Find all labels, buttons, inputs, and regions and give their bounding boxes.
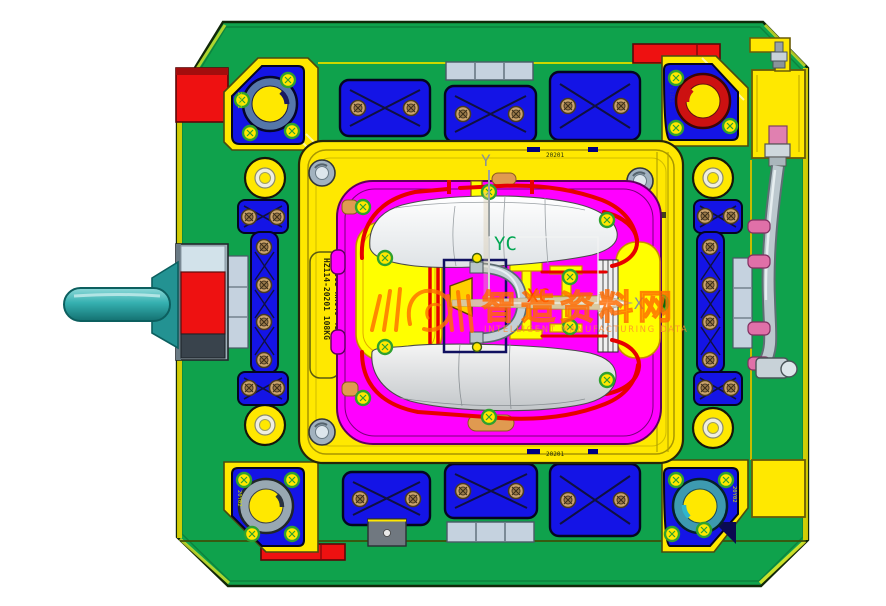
screw-icon [285, 527, 299, 541]
washer-icon [693, 408, 733, 448]
screw-icon [665, 527, 679, 541]
screw-icon [703, 278, 718, 293]
stamp-text: 20Y01 [236, 92, 242, 109]
washer-icon [245, 158, 285, 198]
gray-tabs-bottom[interactable] [368, 519, 534, 546]
screw-icon [482, 410, 496, 424]
screw-icon [281, 73, 295, 87]
pink-fitting [769, 126, 787, 144]
svg-text:HZ114-20201 108KG: HZ114-20201 108KG [322, 258, 331, 340]
yc-label: YC [494, 233, 517, 255]
screw-icon [561, 493, 576, 508]
screw-icon [724, 209, 739, 224]
screw-icon [456, 107, 471, 122]
screw-icon [245, 527, 259, 541]
screw-icon [353, 492, 368, 507]
tab-pin [384, 530, 391, 537]
spacer-stack [227, 256, 248, 348]
screw-icon [257, 353, 272, 368]
screw-icon [356, 391, 370, 405]
screw-icon [242, 381, 257, 396]
pink-nipple [748, 220, 770, 233]
screw-icon [257, 278, 272, 293]
screw-icon [703, 353, 718, 368]
pink-nipple [748, 322, 770, 335]
screw-icon [404, 101, 419, 116]
molded-part-bottom[interactable] [372, 344, 616, 411]
screw-icon [600, 213, 614, 227]
screw-icon [669, 121, 683, 135]
plate-stamp-top: 20201 [546, 152, 564, 159]
screw-icon [237, 473, 251, 487]
corner-pin-icon [309, 419, 335, 445]
stamp-text: 19161 [668, 86, 674, 103]
screw-icon [561, 99, 576, 114]
screw-icon [600, 373, 614, 387]
gray-tabs-top[interactable] [446, 62, 533, 80]
screw-icon [614, 99, 629, 114]
screw-icon [614, 493, 629, 508]
screw-icon [698, 209, 713, 224]
washer-icon [245, 405, 285, 445]
corner-pin-icon [309, 160, 335, 186]
screw-icon [563, 270, 577, 284]
stamp-text: 20Y02 [236, 490, 242, 507]
slot-mark [527, 147, 540, 152]
screw-icon [719, 473, 733, 487]
screw-icon [406, 492, 421, 507]
screw-icon [270, 381, 285, 396]
rod-highlight [74, 295, 160, 297]
bevel-pill [492, 173, 516, 185]
bevel-pill [342, 382, 358, 396]
watermark-title: 智造资料网 [482, 288, 677, 328]
screw-icon [697, 523, 711, 537]
guide-bushing-br[interactable]: 20Y02 [664, 468, 738, 546]
screw-icon [243, 126, 257, 140]
washer-icon [693, 158, 733, 198]
screw-icon [270, 210, 285, 225]
screw-icon [257, 315, 272, 330]
spacer-stack [733, 258, 752, 348]
screw-icon [257, 240, 272, 255]
slot-mark [588, 449, 598, 454]
screw-icon [285, 124, 299, 138]
slot-mark [588, 147, 598, 152]
watermark-subtitle: INTELLIGENT MANUFACTURING DATA [484, 325, 688, 335]
screw-icon [242, 210, 257, 225]
stamp-text: 20Y02 [731, 486, 737, 503]
screw-icon [698, 381, 713, 396]
screw-icon [378, 340, 392, 354]
pink-nipple [748, 255, 770, 268]
screw-icon [509, 484, 524, 499]
plate-stamp-bottom: 20201 [546, 451, 564, 458]
slot-mark [527, 449, 540, 454]
side-lock-assembly[interactable] [64, 244, 228, 360]
axis-y-label: Y [481, 151, 491, 170]
screw-icon [509, 107, 524, 122]
handle-rod[interactable] [64, 288, 170, 321]
screw-icon [724, 381, 739, 396]
screw-icon [703, 315, 718, 330]
screw-icon [285, 473, 299, 487]
screw-icon [723, 119, 737, 133]
screw-icon [378, 251, 392, 265]
screw-icon [669, 473, 683, 487]
cad-viewport[interactable]: 20Y01 19161 20Y02 20Y02 [0, 0, 886, 606]
screw-icon [356, 200, 370, 214]
screw-icon [669, 71, 683, 85]
screw-icon [703, 240, 718, 255]
screw-icon [456, 484, 471, 499]
screw-icon [351, 101, 366, 116]
